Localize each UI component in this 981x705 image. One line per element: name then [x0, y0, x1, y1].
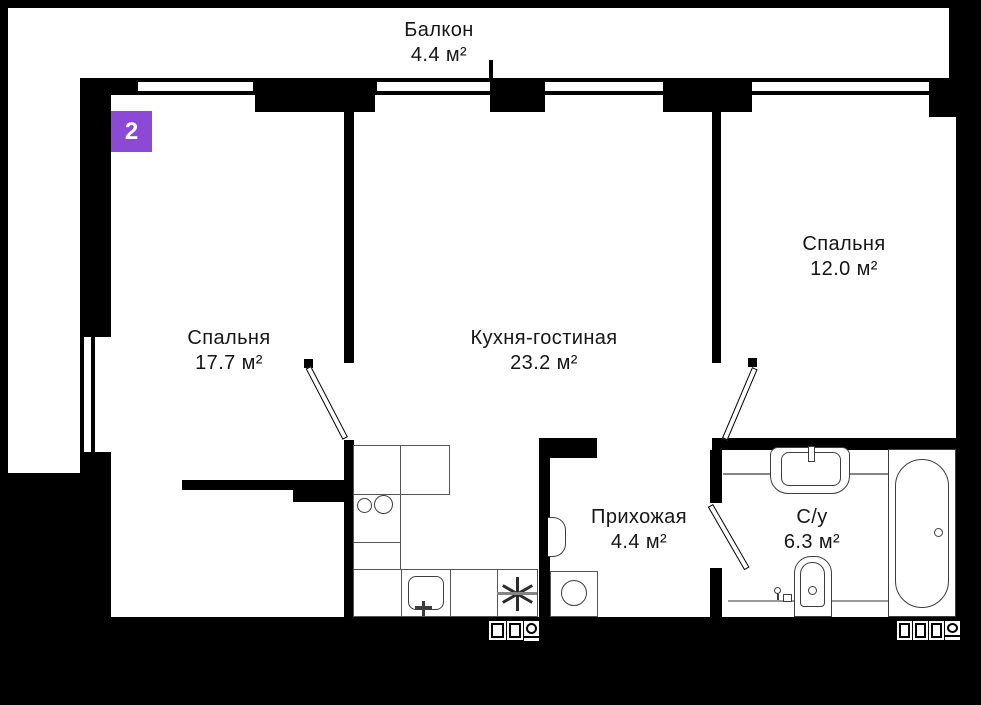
room-label-bedroom2: Спальня 12.0 м² — [802, 232, 885, 282]
vent-block — [929, 621, 944, 640]
window-left — [80, 337, 95, 452]
room-label-hallway: Прихожая 4.4 м² — [591, 505, 687, 555]
floor-drain-icon — [774, 587, 781, 594]
sink-faucet-icon — [808, 446, 815, 462]
floor-drain-icon — [777, 594, 779, 600]
vent-block — [507, 621, 523, 640]
wall-left-lower — [80, 452, 111, 480]
bathtub-drain-icon — [934, 528, 943, 537]
kitchen-sink-icon — [408, 576, 444, 610]
wall-bedroom2-left — [712, 112, 721, 363]
vent-block — [897, 621, 912, 640]
wall-bathroom-left-upper — [710, 450, 722, 503]
room-name: Спальня — [802, 232, 885, 257]
wall-left-upper — [80, 78, 111, 337]
room-label-bedroom1: Спальня 17.7 м² — [187, 326, 270, 376]
wall-hallway-top — [539, 438, 597, 458]
window-1 — [138, 82, 253, 91]
faucet-icon — [415, 606, 432, 609]
pier-2 — [490, 78, 545, 112]
balcony-divider — [489, 60, 493, 78]
vent-block-round — [945, 621, 960, 635]
room-name: Балкон — [404, 18, 473, 43]
room-area: 6.3 м² — [784, 530, 840, 555]
room-label-kitchen-living: Кухня-гостиная 23.2 м² — [470, 326, 617, 376]
room-name: Кухня-гостиная — [470, 326, 617, 351]
wall-right — [956, 112, 981, 705]
room-name: Прихожая — [591, 505, 687, 530]
kitchen-base-1 — [353, 569, 402, 617]
room-area: 23.2 м² — [470, 351, 617, 376]
room-name: С/у — [784, 505, 840, 530]
toilet-bowl-icon — [800, 562, 825, 607]
door-leaf-bedroom2 — [722, 367, 758, 440]
door-leaf-bedroom1 — [306, 366, 348, 440]
asterisk-icon — [497, 592, 537, 595]
kitchen-counter-1 — [353, 445, 401, 495]
toilet-drain-icon — [808, 586, 817, 595]
vent-block — [489, 621, 506, 640]
wall-left-mass — [0, 473, 111, 705]
wall-bathroom-left-lower — [710, 568, 722, 617]
room-label-bathroom: С/у 6.3 м² — [784, 505, 840, 555]
room-area: 12.0 м² — [802, 257, 885, 282]
pier-4 — [929, 78, 981, 117]
window-3 — [545, 82, 663, 91]
rooms-count-badge: 2 — [111, 111, 152, 152]
room-area: 4.4 м² — [591, 530, 687, 555]
rooms-count: 2 — [125, 118, 138, 146]
wall-bedroom1-upper — [344, 95, 354, 363]
burner-icon — [374, 495, 393, 514]
door-leaf-bathroom — [708, 504, 750, 570]
wall-left-outline — [0, 0, 8, 478]
floor-plan: Балкон 4.4 м² Спальня 17.7 м² Кухня-гост… — [0, 0, 981, 705]
door-cap-bedroom2 — [748, 358, 757, 367]
kitchen-base-3 — [450, 569, 498, 617]
window-4 — [752, 82, 929, 91]
washing-machine-drum-icon — [561, 580, 587, 606]
wall-top-outline — [0, 0, 981, 8]
vent-underline — [524, 638, 539, 641]
floor-drain-grate-icon — [783, 594, 792, 602]
room-area: 4.4 м² — [404, 43, 473, 68]
burner-icon — [357, 498, 372, 513]
wall-balcony-corner — [949, 8, 981, 82]
vent-block — [913, 621, 928, 640]
vent-underline — [945, 637, 960, 640]
room-area: 17.7 м² — [187, 351, 270, 376]
room-label-balcony: Балкон 4.4 м² — [404, 18, 473, 68]
wall-wardrobe-thick — [293, 480, 345, 502]
pier-3 — [663, 78, 752, 112]
kitchen-cabinet — [353, 542, 401, 570]
kitchen-counter-2 — [400, 445, 450, 495]
radiator-column — [548, 517, 566, 557]
vent-block-round — [524, 621, 539, 636]
room-name: Спальня — [187, 326, 270, 351]
window-2 — [377, 82, 490, 91]
pier-1 — [255, 78, 375, 112]
